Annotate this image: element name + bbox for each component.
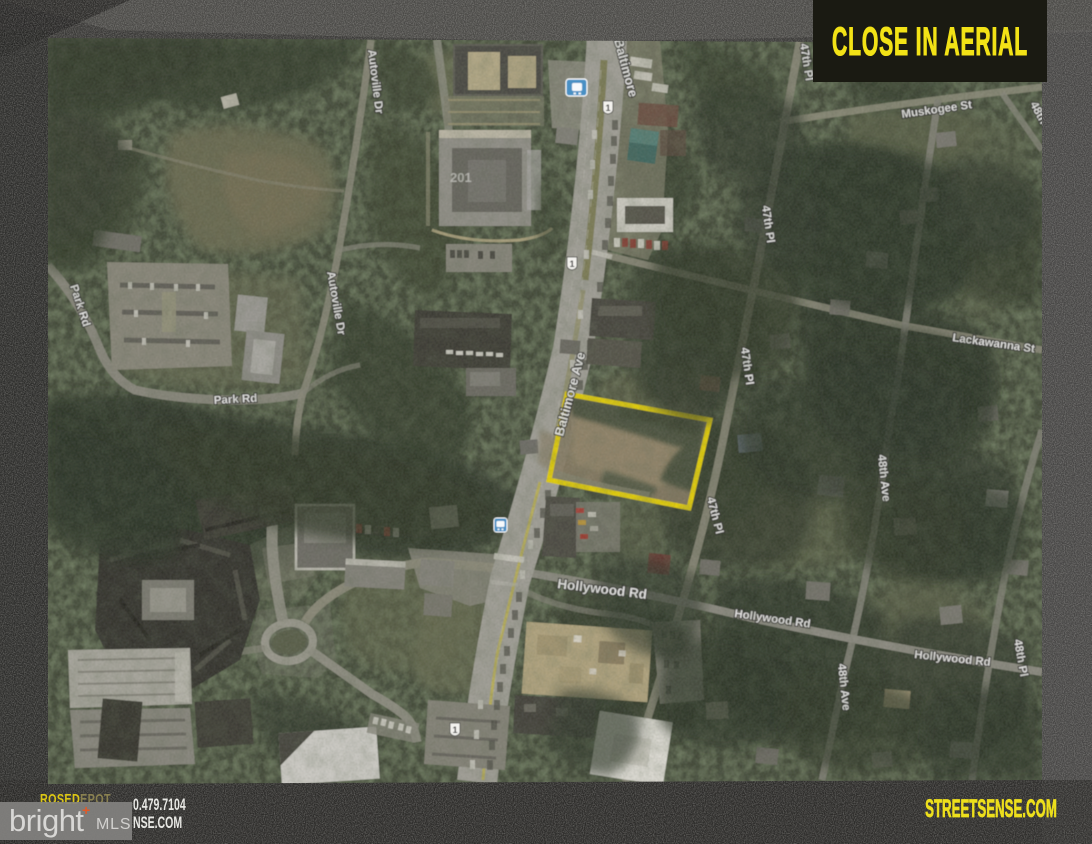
svg-text:+: +: [82, 802, 90, 818]
svg-text:CLOSE IN AERIAL: CLOSE IN AERIAL: [832, 19, 1028, 64]
svg-text:NSE.COM: NSE.COM: [133, 812, 182, 831]
svg-text:bright: bright: [9, 803, 84, 838]
svg-text:1: 1: [452, 725, 457, 735]
svg-text:STREETSENSE.COM: STREETSENSE.COM: [925, 796, 1057, 823]
svg-text:0.479.7104: 0.479.7104: [133, 794, 186, 813]
svg-text:1: 1: [569, 259, 574, 269]
svg-text:MLS: MLS: [96, 816, 131, 833]
svg-text:1: 1: [605, 103, 610, 113]
